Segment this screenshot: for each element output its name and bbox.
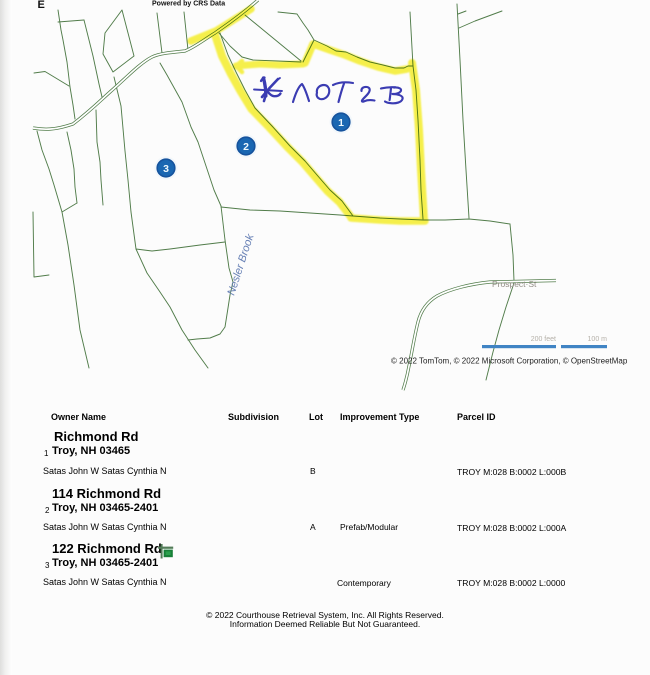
svg-text:100 m: 100 m [588,336,608,343]
svg-text:© 2022 TomTom, © 2022 Microsof: © 2022 TomTom, © 2022 Microsoft Corporat… [391,357,628,366]
svg-text:Powered by CRS Data: Powered by CRS Data [152,1,225,8]
svg-text:Prospect·St: Prospect·St [492,279,537,289]
svg-text:E: E [38,0,45,11]
svg-text:Nesler Brook: Nesler Brook [225,232,256,297]
svg-text:3: 3 [163,163,169,175]
svg-text:200 feet: 200 feet [531,336,556,343]
svg-text:1: 1 [338,117,344,129]
svg-text:2: 2 [243,141,249,153]
